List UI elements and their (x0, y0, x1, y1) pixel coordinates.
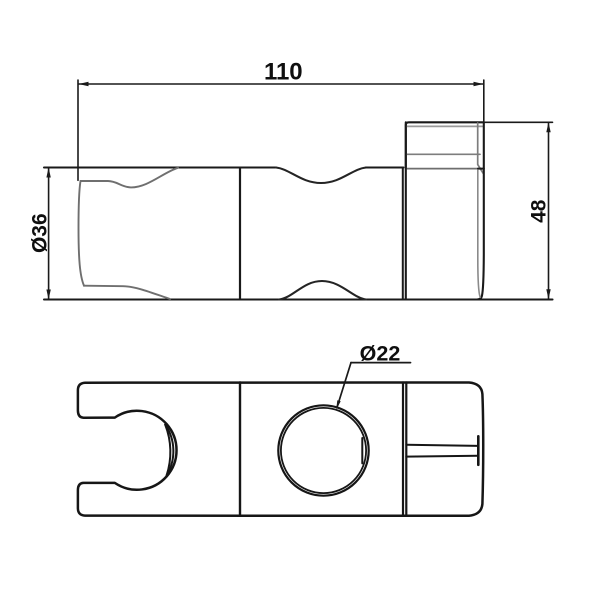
svg-text:110: 110 (264, 59, 303, 86)
svg-text:Ø36: Ø36 (29, 213, 52, 253)
svg-text:48: 48 (528, 199, 551, 223)
svg-text:Ø22: Ø22 (360, 341, 401, 365)
